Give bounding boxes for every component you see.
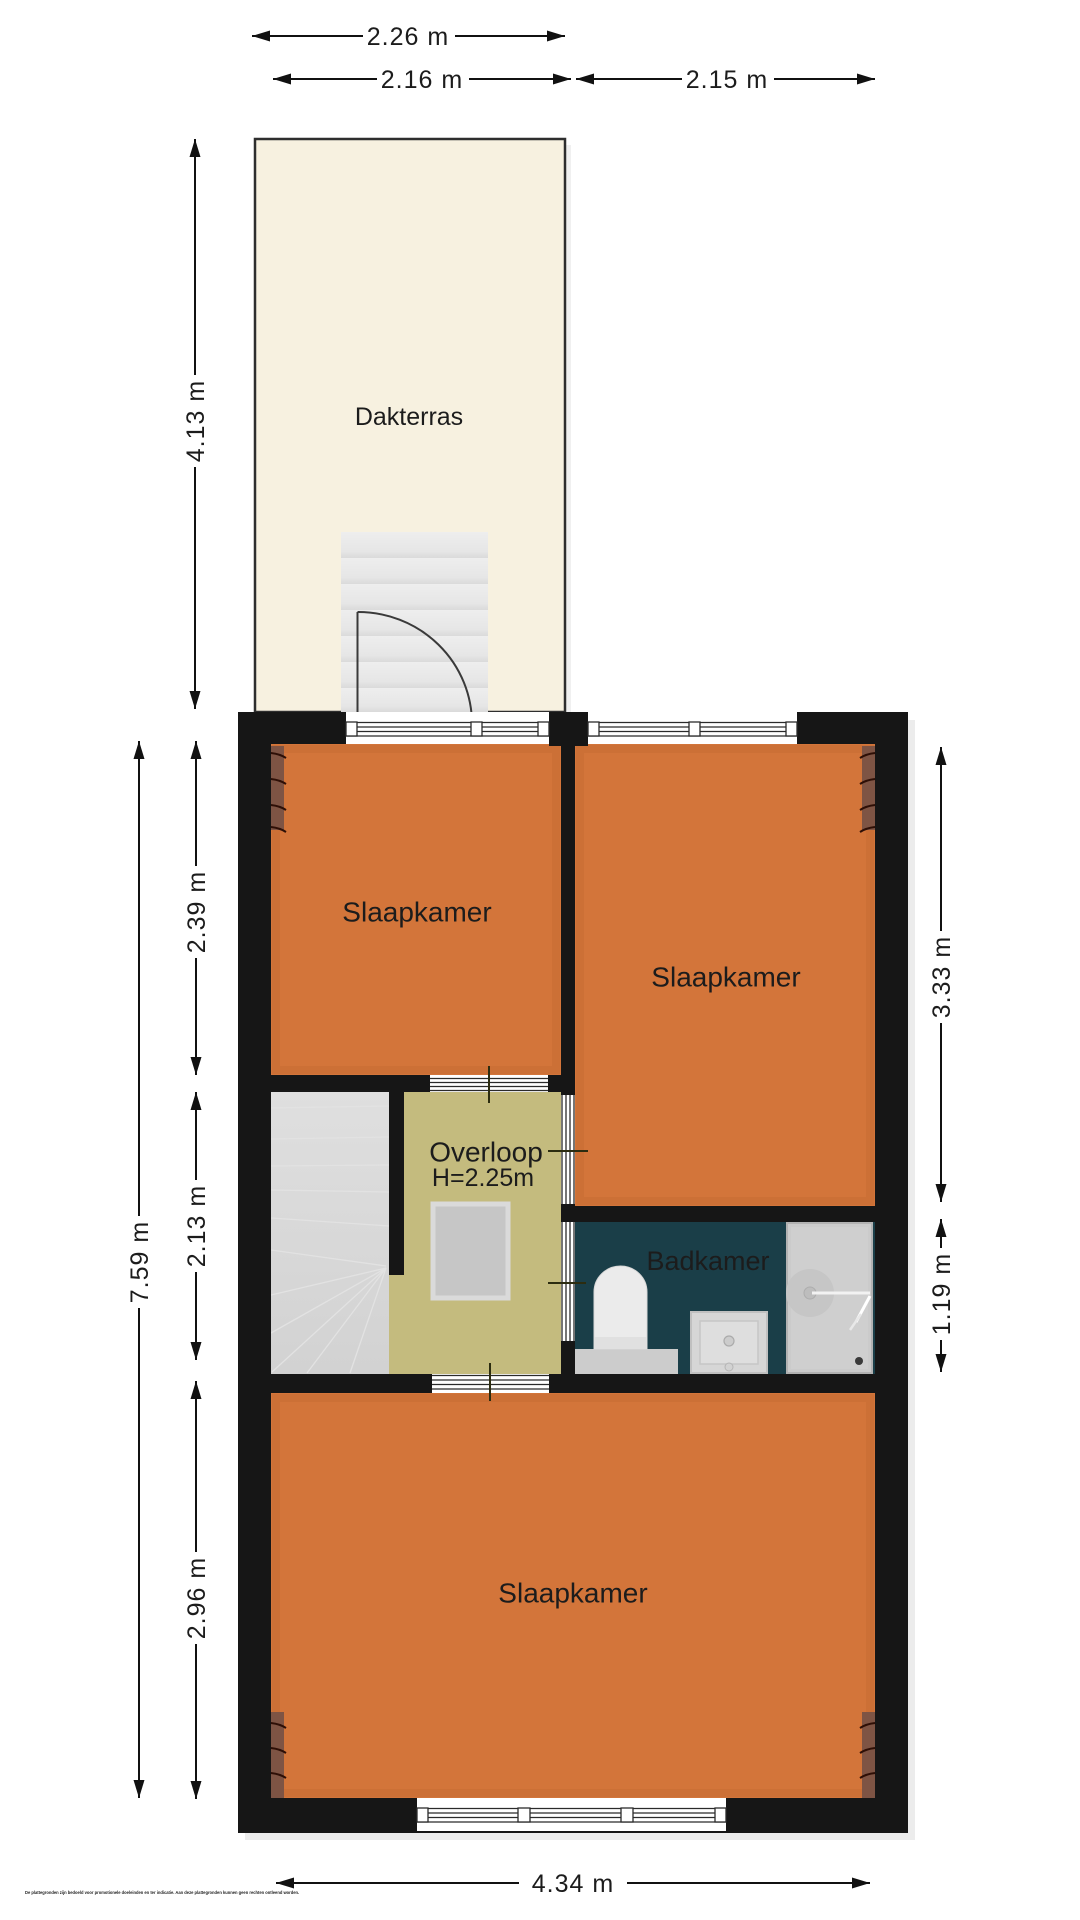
svg-text:2.26 m: 2.26 m — [367, 23, 449, 51]
svg-text:4.13 m: 4.13 m — [182, 380, 210, 462]
svg-text:Dakterras: Dakterras — [355, 403, 463, 431]
svg-text:4.34 m: 4.34 m — [532, 1870, 614, 1898]
svg-text:2.39 m: 2.39 m — [183, 871, 211, 953]
svg-text:1.19 m: 1.19 m — [928, 1253, 956, 1335]
svg-text:2.15 m: 2.15 m — [686, 66, 768, 94]
svg-text:Overloop: Overloop — [429, 1137, 543, 1168]
svg-text:Badkamer: Badkamer — [646, 1246, 769, 1276]
svg-text:7.59 m: 7.59 m — [126, 1221, 154, 1303]
svg-text:Slaapkamer: Slaapkamer — [342, 897, 491, 928]
svg-text:2.13 m: 2.13 m — [183, 1185, 211, 1267]
svg-text:2.16 m: 2.16 m — [381, 66, 463, 94]
svg-text:3.33 m: 3.33 m — [928, 936, 956, 1018]
svg-text:2.96 m: 2.96 m — [183, 1557, 211, 1639]
svg-text:Slaapkamer: Slaapkamer — [498, 1578, 647, 1609]
svg-text:H=2.25m: H=2.25m — [432, 1164, 534, 1192]
svg-text:De plattegronden zijn bedoeld: De plattegronden zijn bedoeld voor promo… — [25, 1890, 299, 1895]
svg-text:Slaapkamer: Slaapkamer — [651, 962, 800, 993]
